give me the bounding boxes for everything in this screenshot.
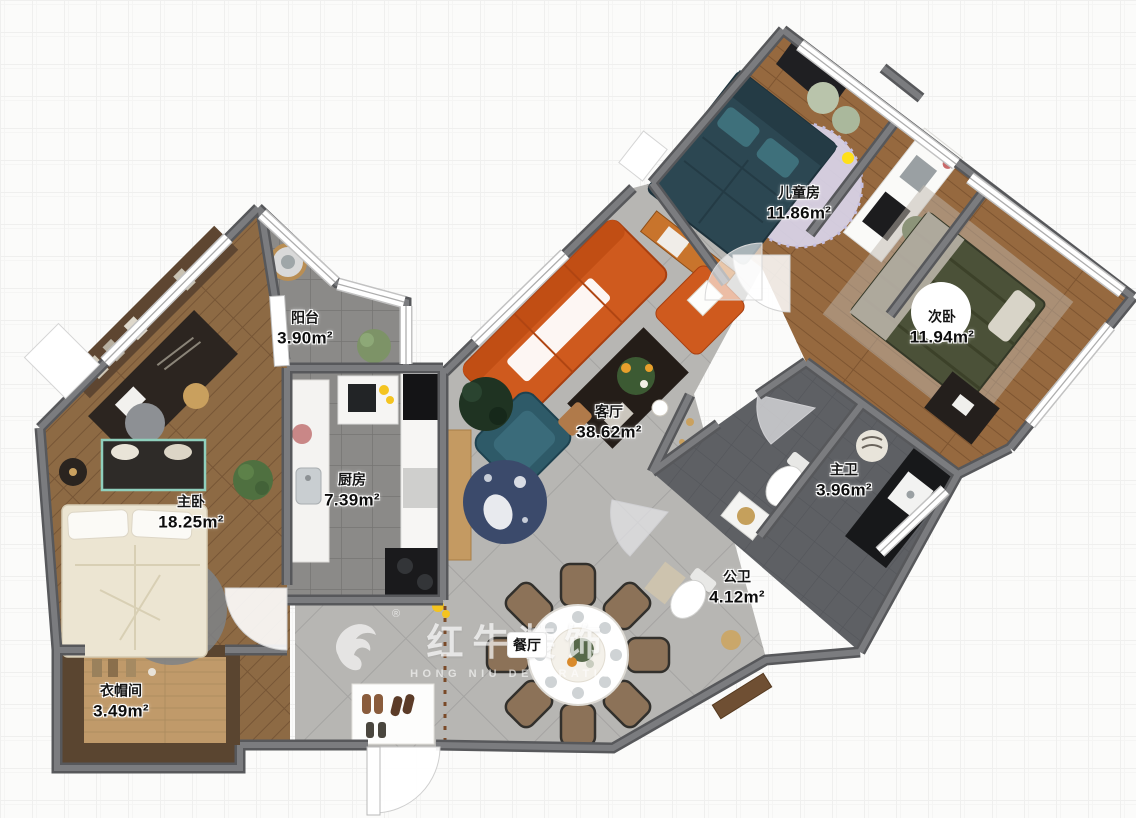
light-point [842, 152, 854, 164]
entry-door[interactable] [367, 747, 440, 815]
plant-icon [357, 329, 391, 363]
kitchen-bowl [292, 424, 312, 444]
master-stool[interactable] [183, 383, 209, 409]
master-bed[interactable] [62, 505, 207, 657]
dining-furniture[interactable] [487, 564, 669, 746]
floorplan-drawing [0, 0, 1136, 818]
master-bench[interactable] [102, 440, 205, 490]
label-backdrop [911, 282, 971, 342]
bath-stool [721, 630, 741, 650]
fridge[interactable] [403, 374, 441, 420]
floorplan-canvas[interactable]: 儿童房 11.86m² 次卧 11.94m² 阳台 3.90m² 主卧 18.2… [0, 0, 1136, 818]
cooktop[interactable] [385, 548, 441, 598]
room-cloakroom-floor[interactable] [55, 645, 240, 770]
plant-icon [233, 460, 273, 500]
beanbag [807, 82, 839, 114]
beanbag [832, 106, 860, 134]
table-plant-icon [617, 357, 655, 395]
master-chair[interactable] [125, 403, 165, 443]
cloakroom-wardrobe[interactable] [92, 659, 136, 677]
